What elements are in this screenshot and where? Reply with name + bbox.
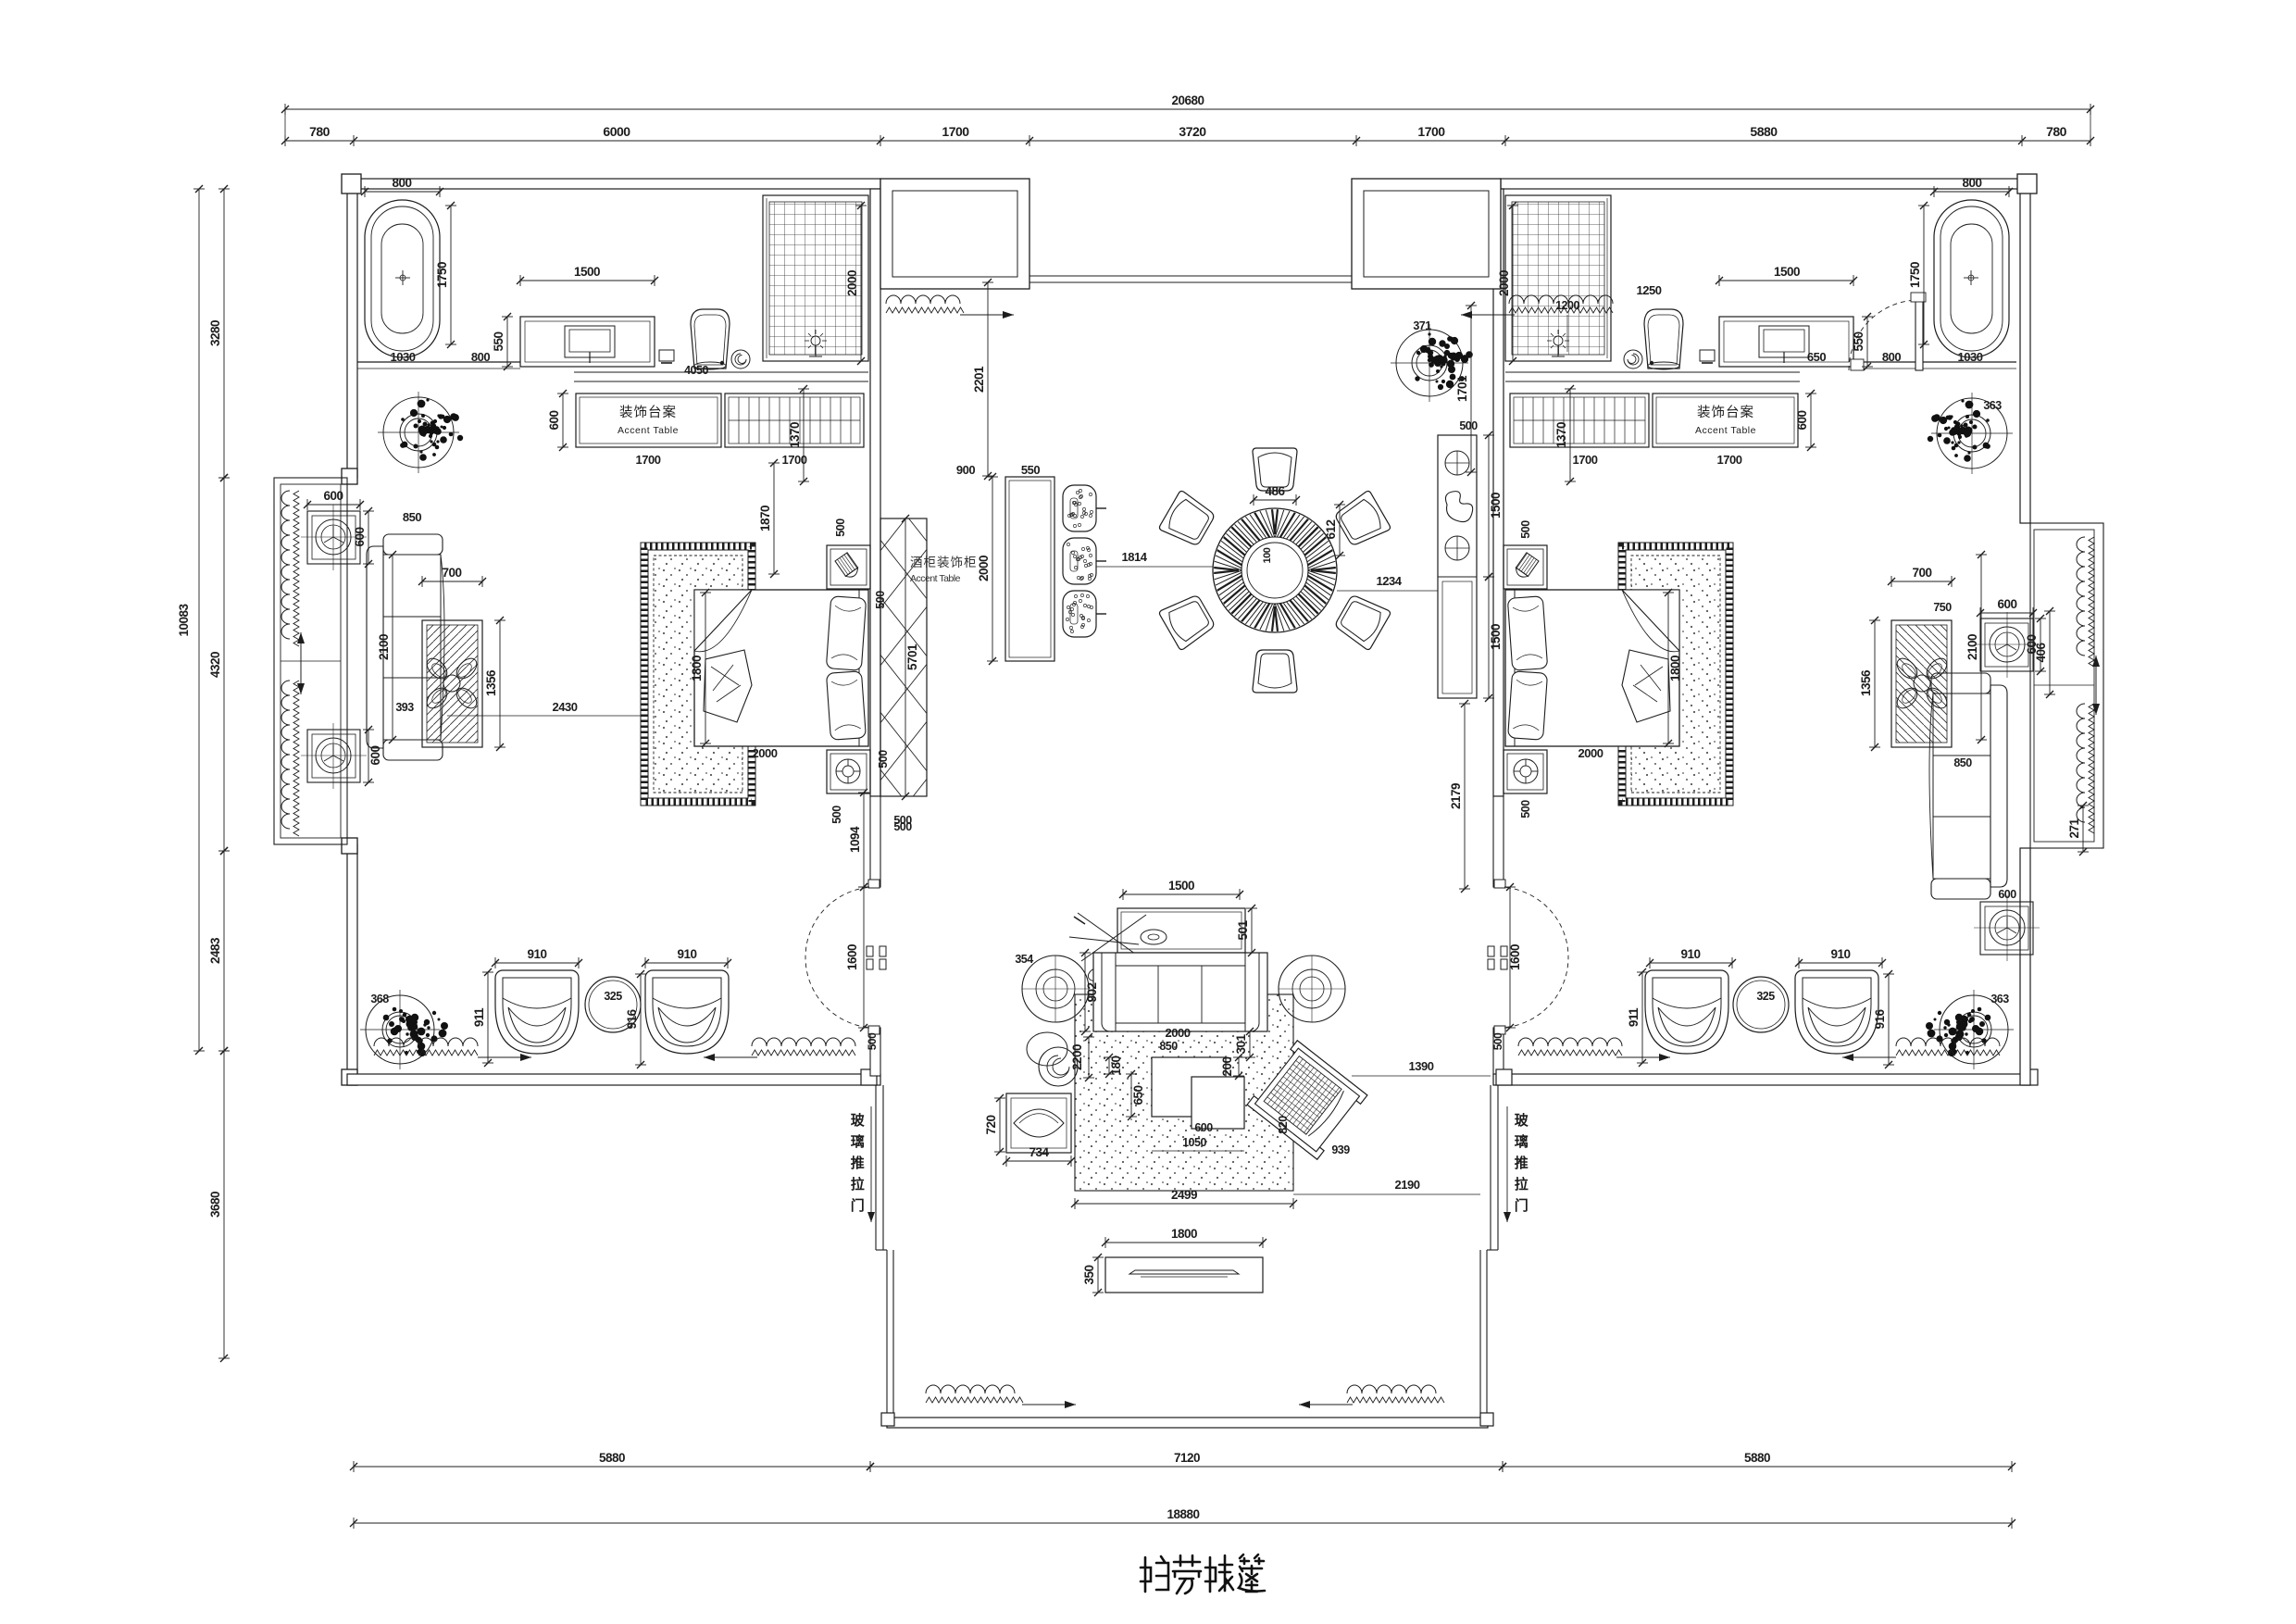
svg-text:2000: 2000 [1166, 1026, 1191, 1040]
svg-text:1700: 1700 [636, 453, 661, 467]
svg-text:1356: 1356 [1859, 669, 1873, 696]
svg-text:2000: 2000 [977, 556, 991, 581]
svg-text:500: 500 [830, 806, 843, 824]
svg-text:600: 600 [368, 745, 382, 765]
svg-text:璃: 璃 [851, 1133, 865, 1150]
svg-text:271: 271 [2067, 818, 2081, 838]
svg-text:1500: 1500 [1489, 493, 1503, 518]
svg-text:1234: 1234 [1377, 574, 1403, 588]
svg-text:1500: 1500 [1774, 265, 1800, 279]
svg-text:1701: 1701 [1455, 375, 1469, 402]
svg-text:800: 800 [392, 176, 411, 190]
svg-text:100: 100 [1262, 547, 1273, 563]
svg-text:1750: 1750 [1908, 262, 1922, 288]
svg-text:501: 501 [1236, 919, 1250, 940]
svg-text:2190: 2190 [1395, 1178, 1420, 1192]
svg-text:7120: 7120 [1174, 1451, 1200, 1465]
svg-text:600: 600 [1795, 410, 1809, 430]
svg-text:Accent Table: Accent Table [618, 425, 679, 436]
svg-text:650: 650 [1807, 350, 1826, 364]
svg-text:910: 910 [527, 947, 546, 961]
svg-text:500: 500 [1459, 419, 1478, 432]
svg-text:1700: 1700 [942, 124, 969, 139]
svg-text:酒柜装饰柜: 酒柜装饰柜 [910, 556, 978, 569]
svg-text:2179: 2179 [1449, 783, 1463, 809]
svg-text:1390: 1390 [1409, 1059, 1434, 1073]
svg-text:1500: 1500 [1168, 879, 1194, 893]
svg-text:750: 750 [1933, 601, 1952, 614]
svg-text:5880: 5880 [1744, 1451, 1770, 1465]
svg-text:910: 910 [1830, 947, 1850, 961]
svg-text:2000: 2000 [845, 270, 859, 296]
svg-text:500: 500 [1519, 800, 1532, 818]
svg-text:玻: 玻 [851, 1112, 866, 1129]
svg-text:550: 550 [1021, 463, 1040, 477]
svg-text:850: 850 [1953, 756, 1972, 769]
svg-text:2200: 2200 [1070, 1044, 1084, 1070]
svg-text:20680: 20680 [1171, 94, 1204, 107]
svg-text:600: 600 [1998, 888, 2016, 901]
svg-text:550: 550 [1852, 331, 1865, 351]
svg-text:850: 850 [1159, 1040, 1178, 1053]
svg-text:璃: 璃 [1515, 1133, 1529, 1150]
svg-text:10083: 10083 [177, 603, 191, 636]
svg-text:门: 门 [851, 1197, 865, 1214]
svg-text:500: 500 [1519, 520, 1532, 539]
svg-text:910: 910 [677, 947, 696, 961]
svg-text:玻: 玻 [1515, 1112, 1529, 1129]
svg-text:1094: 1094 [848, 826, 862, 853]
svg-text:1250: 1250 [1637, 283, 1662, 297]
svg-text:734: 734 [1029, 1145, 1049, 1159]
svg-text:486: 486 [1265, 484, 1285, 498]
svg-text:1600: 1600 [845, 944, 859, 970]
svg-text:1370: 1370 [1554, 422, 1568, 448]
svg-text:装饰台案: 装饰台案 [619, 404, 677, 420]
svg-text:900: 900 [956, 463, 975, 477]
svg-text:600: 600 [2025, 634, 2039, 654]
svg-text:800: 800 [1882, 350, 1901, 364]
svg-text:1500: 1500 [574, 265, 600, 279]
svg-text:363: 363 [1990, 993, 2009, 1006]
svg-text:装饰台案: 装饰台案 [1697, 404, 1754, 420]
svg-text:902: 902 [1085, 982, 1099, 1002]
svg-text:1356: 1356 [484, 669, 498, 696]
svg-text:916: 916 [1873, 1008, 1887, 1029]
svg-text:3680: 3680 [208, 1192, 222, 1218]
svg-text:2100: 2100 [1965, 634, 1979, 660]
svg-text:6000: 6000 [603, 124, 630, 139]
svg-text:500: 500 [874, 591, 887, 609]
svg-text:850: 850 [403, 510, 421, 524]
svg-text:3280: 3280 [208, 320, 222, 346]
svg-text:500: 500 [866, 1032, 879, 1050]
svg-text:1600: 1600 [1508, 944, 1522, 970]
svg-text:2000: 2000 [1497, 270, 1511, 296]
svg-text:2100: 2100 [377, 634, 391, 660]
svg-text:612: 612 [1324, 519, 1338, 539]
svg-text:800: 800 [1962, 176, 1981, 190]
svg-text:916: 916 [625, 1008, 639, 1029]
svg-text:650: 650 [1131, 1085, 1145, 1105]
svg-text:2201: 2201 [972, 366, 986, 393]
svg-text:200: 200 [1220, 1056, 1234, 1076]
svg-text:600: 600 [1997, 597, 2016, 611]
svg-text:363: 363 [1983, 399, 2002, 412]
svg-text:5880: 5880 [599, 1451, 625, 1465]
svg-text:1750: 1750 [435, 262, 449, 288]
svg-text:1500: 1500 [1489, 624, 1503, 650]
svg-text:325: 325 [604, 990, 622, 1003]
svg-text:5880: 5880 [1750, 124, 1778, 139]
svg-text:1700: 1700 [1417, 124, 1445, 139]
svg-text:325: 325 [1756, 990, 1775, 1003]
svg-text:门: 门 [1515, 1197, 1529, 1214]
svg-text:2430: 2430 [553, 700, 578, 714]
svg-text:1030: 1030 [1958, 350, 1983, 364]
svg-text:911: 911 [472, 1007, 486, 1027]
svg-text:推: 推 [851, 1155, 865, 1171]
svg-text:371: 371 [1413, 319, 1431, 332]
svg-text:2000: 2000 [1578, 746, 1603, 760]
svg-text:700: 700 [442, 566, 461, 580]
svg-text:780: 780 [2046, 124, 2067, 139]
svg-text:301: 301 [1234, 1033, 1248, 1054]
svg-text:720: 720 [984, 1115, 998, 1134]
svg-text:1700: 1700 [1573, 453, 1598, 467]
svg-text:4050: 4050 [684, 364, 708, 377]
svg-text:350: 350 [1082, 1265, 1096, 1284]
svg-text:1800: 1800 [690, 656, 704, 681]
svg-text:820: 820 [1277, 1116, 1290, 1134]
svg-text:拉: 拉 [851, 1176, 865, 1193]
svg-text:500: 500 [1491, 1032, 1504, 1050]
svg-text:1050: 1050 [1182, 1136, 1206, 1149]
svg-text:500: 500 [893, 814, 912, 827]
svg-text:500: 500 [834, 518, 847, 537]
svg-text:800: 800 [471, 350, 490, 364]
svg-text:700: 700 [1912, 566, 1931, 580]
svg-text:1814: 1814 [1122, 550, 1148, 564]
svg-text:600: 600 [323, 489, 343, 503]
svg-text:600: 600 [547, 410, 561, 430]
svg-text:180: 180 [1109, 1056, 1123, 1075]
svg-text:1800: 1800 [1171, 1227, 1197, 1241]
svg-text:600: 600 [1194, 1121, 1213, 1134]
svg-text:Accent Table: Accent Table [910, 573, 961, 584]
svg-text:393: 393 [395, 701, 414, 714]
svg-text:Accent Table: Accent Table [1695, 425, 1756, 436]
svg-text:911: 911 [1627, 1007, 1641, 1027]
svg-text:600: 600 [353, 527, 367, 546]
svg-text:550: 550 [492, 331, 505, 351]
svg-text:2483: 2483 [208, 937, 222, 964]
svg-text:368: 368 [370, 993, 389, 1006]
svg-text:1370: 1370 [788, 422, 802, 448]
svg-text:1700: 1700 [1717, 453, 1742, 467]
svg-text:780: 780 [309, 124, 331, 139]
svg-text:2000: 2000 [753, 746, 778, 760]
svg-text:500: 500 [877, 750, 890, 768]
svg-text:4320: 4320 [208, 652, 222, 678]
svg-text:1030: 1030 [391, 350, 416, 364]
svg-text:939: 939 [1331, 1143, 1350, 1156]
svg-text:拉: 拉 [1515, 1176, 1529, 1193]
svg-text:推: 推 [1515, 1155, 1529, 1171]
svg-text:18880: 18880 [1167, 1507, 1199, 1521]
svg-text:2499: 2499 [1171, 1188, 1197, 1202]
svg-text:910: 910 [1680, 947, 1700, 961]
svg-text:1200: 1200 [1555, 299, 1579, 312]
svg-text:5701: 5701 [905, 643, 919, 670]
svg-text:1800: 1800 [1668, 656, 1682, 681]
svg-text:3720: 3720 [1179, 124, 1206, 139]
svg-text:354: 354 [1015, 953, 1033, 966]
svg-text:1870: 1870 [758, 506, 772, 531]
